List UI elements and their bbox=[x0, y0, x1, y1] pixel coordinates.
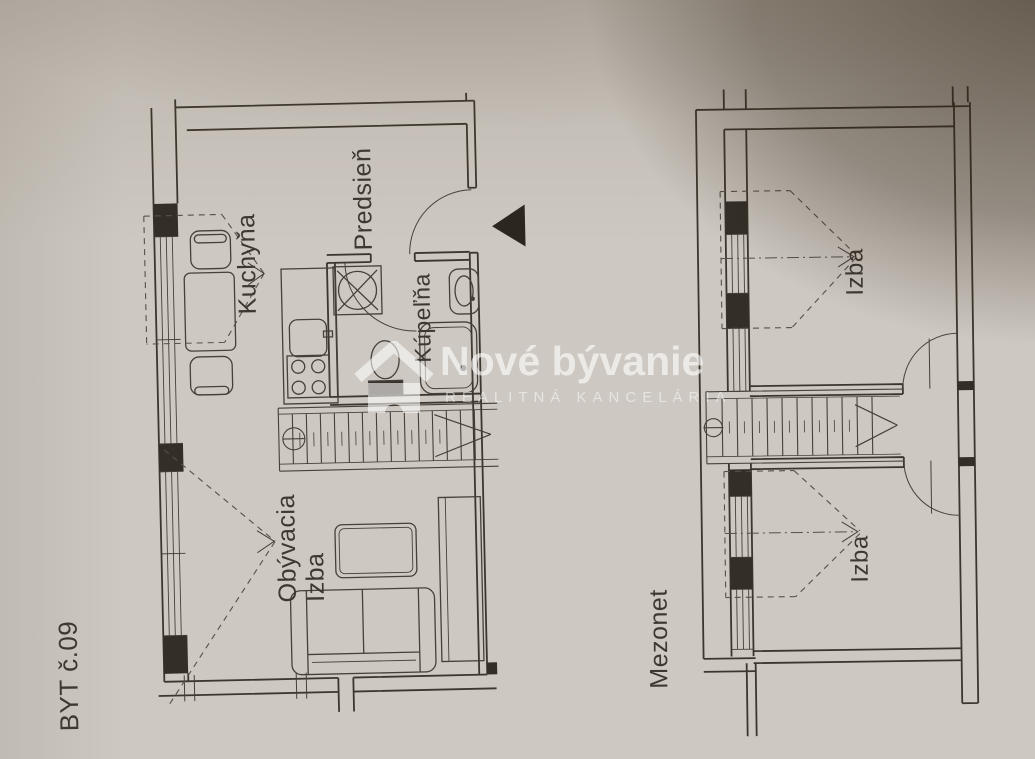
entrance-arrow-icon bbox=[492, 205, 526, 248]
tv-table-icon bbox=[335, 523, 417, 578]
toilet-icon bbox=[368, 340, 403, 395]
washing-machine-icon bbox=[333, 266, 382, 315]
plan-title-byt: BYT č.09 bbox=[53, 621, 84, 732]
room-label-izba-lower: Izba bbox=[847, 535, 874, 583]
staircase-byt-icon bbox=[278, 403, 498, 471]
room-label-kupelna: Kúpeľňa bbox=[409, 273, 436, 363]
staircase-mezonet-icon bbox=[703, 389, 904, 464]
room-label-kuchyna: Kuchyňa bbox=[232, 213, 262, 314]
plan-mezonet bbox=[696, 86, 979, 737]
room-label-predsien: Predsieň bbox=[348, 147, 378, 250]
kitchen-counter-icon bbox=[281, 268, 338, 404]
sink-icon bbox=[449, 269, 479, 315]
plan-byt bbox=[141, 92, 536, 716]
floorplan-photo: BYT č.09 Kuchyňa Predsieň Kúpeľňa Obývac… bbox=[0, 0, 1035, 759]
room-label-obyvacia-izba: Obývacia Izba bbox=[272, 493, 330, 602]
dining-set-icon bbox=[183, 230, 237, 395]
room-label-izba-upper: Izba bbox=[842, 248, 869, 296]
floorplan-drawing bbox=[0, 0, 1035, 759]
plan-title-mezonet: Mezonet bbox=[645, 589, 674, 689]
